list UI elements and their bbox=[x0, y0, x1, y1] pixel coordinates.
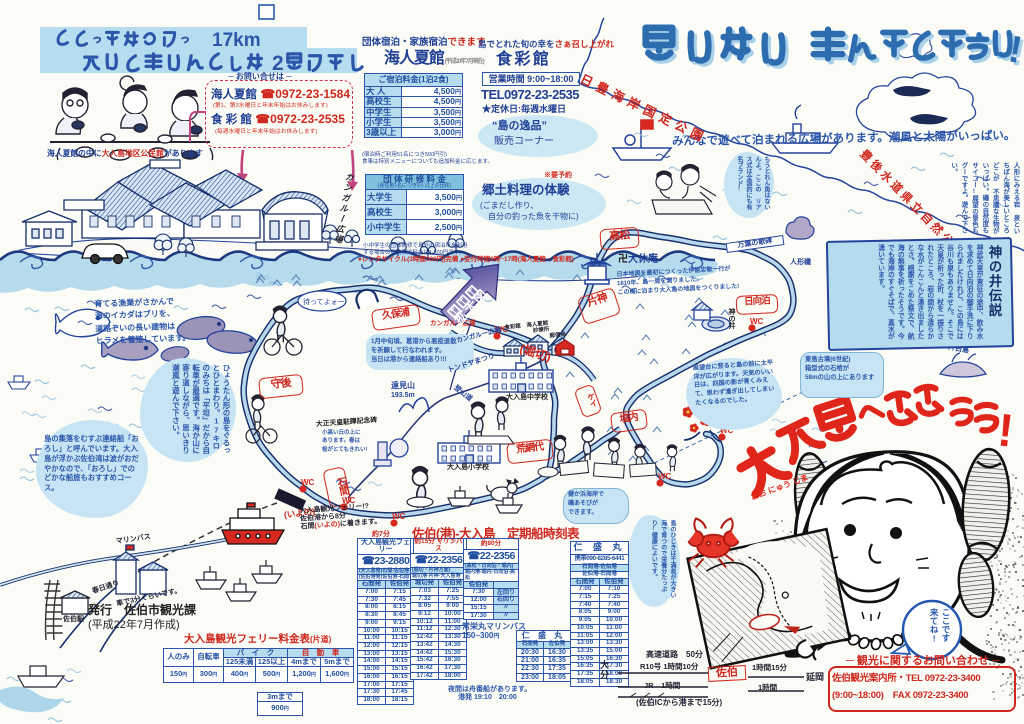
svg-text:WC: WC bbox=[750, 317, 764, 326]
svg-text:17km: 17km bbox=[212, 30, 261, 51]
svg-text:!: ! bbox=[995, 403, 1016, 456]
svg-text:待ってよォー: 待ってよォー bbox=[303, 297, 345, 306]
svg-text:WC: WC bbox=[301, 478, 315, 487]
svg-text:WC: WC bbox=[392, 512, 406, 521]
svg-text:WC: WC bbox=[658, 472, 672, 481]
